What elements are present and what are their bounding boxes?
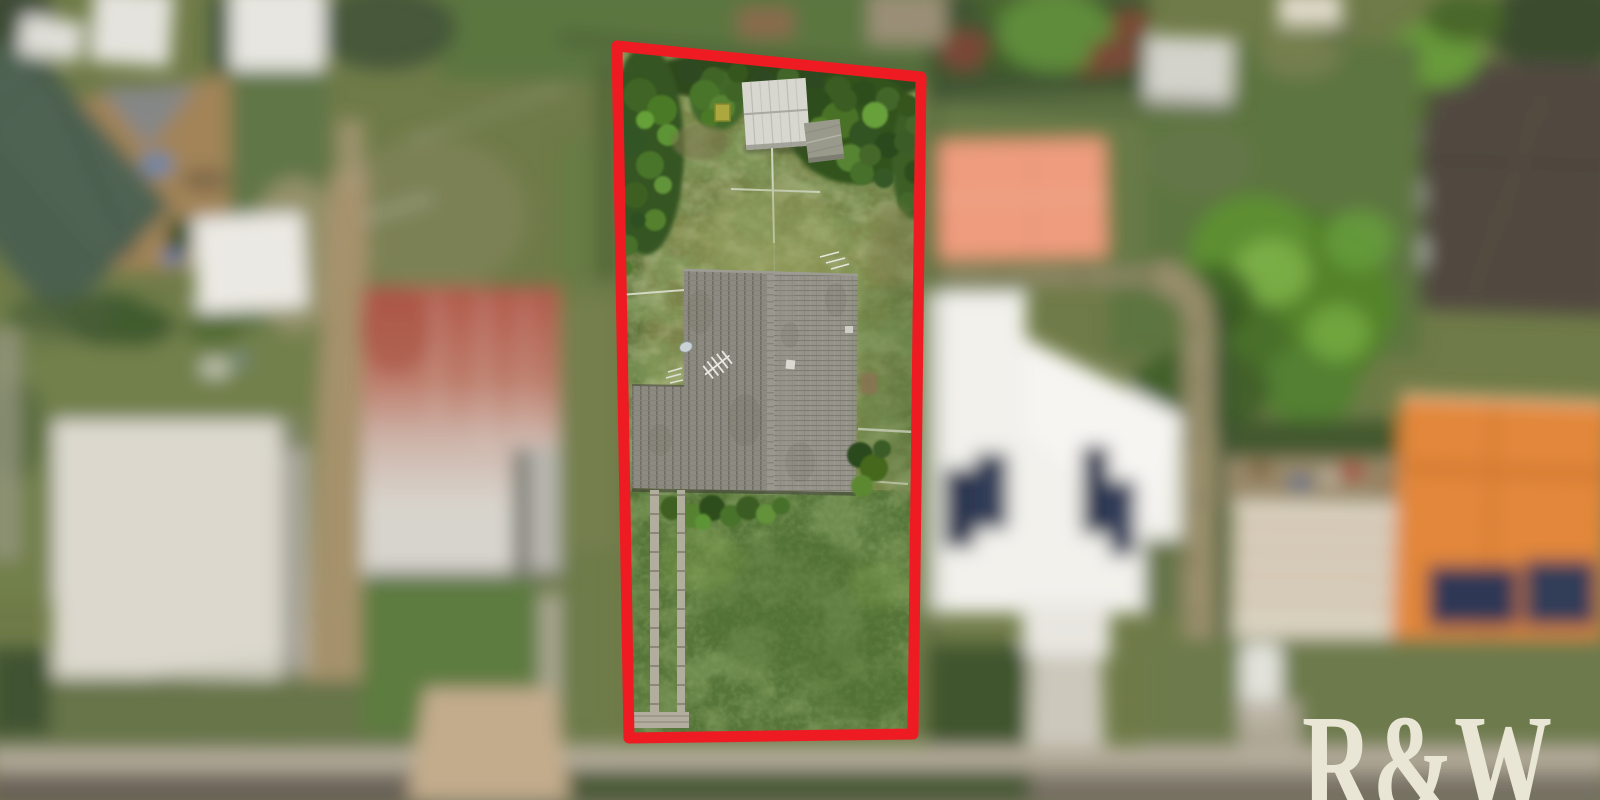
svg-text:R&W: R&W — [1302, 685, 1552, 800]
